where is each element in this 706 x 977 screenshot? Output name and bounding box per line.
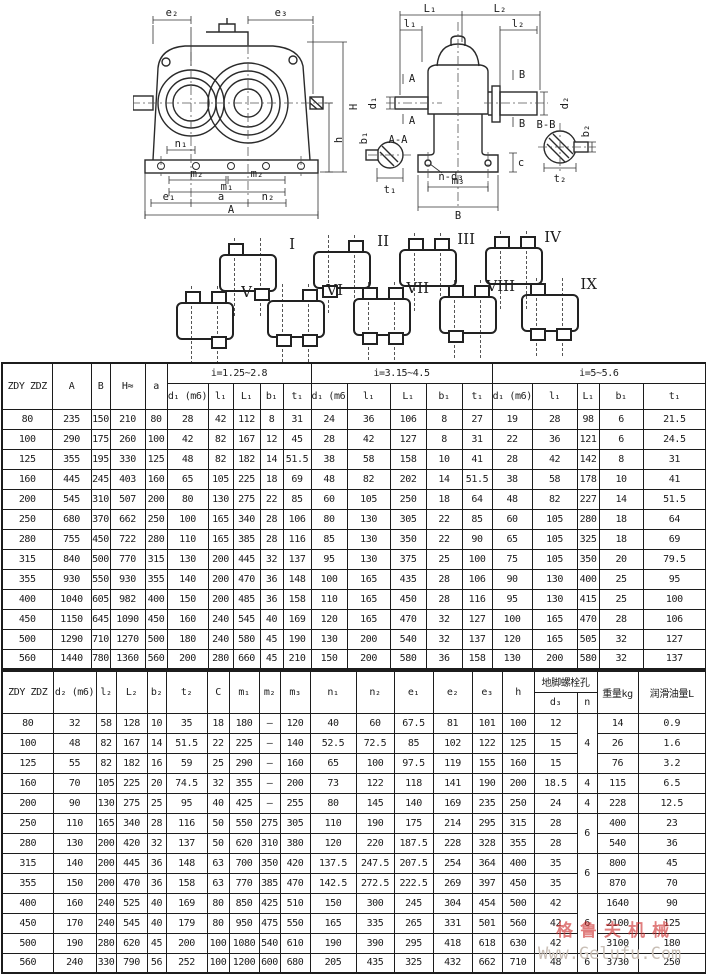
front-view-drawing: e₂ e₃ H h n₁ m₂ m₂ m₁ e₁ a n₂ A [133, 2, 361, 232]
table-cell: 470 [233, 569, 260, 589]
table-cell: 1360 [110, 649, 145, 669]
dim-label-L2: L₂ [494, 3, 507, 15]
column-header-a: a [145, 363, 167, 409]
table-cell: 182 [233, 449, 260, 469]
table-cell: 125 [502, 733, 534, 753]
table-cell: 310 [259, 833, 280, 853]
table-row: 5001290710127050018024058045190130200540… [2, 629, 706, 649]
table-cell: 110 [53, 813, 96, 833]
table-cell: 210 [110, 409, 145, 429]
table-cell: 64 [643, 509, 706, 529]
table-cell: 6.5 [638, 773, 706, 793]
table-cell: 81 [433, 713, 472, 733]
table-cell: 100 [207, 953, 229, 973]
table-cell: 28 [260, 529, 283, 549]
table-cell: 700 [229, 853, 259, 873]
table-cell: 165 [347, 589, 390, 609]
table-cell: 605 [91, 589, 110, 609]
section-title-AA: A-A [389, 134, 409, 146]
table-cell: 254 [433, 853, 472, 873]
table-cell: 331 [433, 913, 472, 933]
dim-label-e3: e₃ [275, 7, 288, 19]
shaft-stub-top [520, 236, 536, 249]
table-cell: 22 [426, 529, 462, 549]
table-cell: 32 [147, 833, 166, 853]
table-cell: 32 [599, 649, 643, 669]
table-cell: 330 [96, 953, 116, 973]
dim-label-l1: l₁ [404, 18, 417, 30]
table-cell: 95 [166, 793, 207, 813]
table-cell: 200 [532, 649, 577, 669]
dim-label-e2: e₂ [166, 7, 179, 19]
table-cell: 710 [91, 629, 110, 649]
table-cell: 31 [462, 429, 492, 449]
table-cell: 222.5 [394, 873, 433, 893]
table-cell: 12.5 [638, 793, 706, 813]
table-cell: 100 [492, 609, 532, 629]
dim-label-t1: t₁ [384, 184, 397, 196]
table-cell: 4 [577, 773, 597, 793]
table-cell: 80 [145, 409, 167, 429]
shaft-stub-bottom [448, 330, 464, 343]
column-header-m1: m₁ [229, 671, 259, 713]
column-header-l2: l₂ [96, 671, 116, 713]
table-cell: 200 [166, 933, 207, 953]
table-cell: 142 [577, 449, 599, 469]
table-cell: 1040 [52, 589, 91, 609]
table-cell: 42 [532, 449, 577, 469]
table-cell: 1440 [52, 649, 91, 669]
table-cell: 620 [116, 933, 147, 953]
table-cell: 65 [167, 469, 208, 489]
column-header-b1: b₁ [260, 383, 283, 409]
table-cell: 355 [2, 873, 53, 893]
table-cell: 335 [356, 913, 394, 933]
table-row: 160701052252074.532355—20073122118141190… [2, 773, 706, 793]
table-cell: 101 [472, 713, 502, 733]
table-cell: 72.5 [356, 733, 394, 753]
table-cell: 110 [167, 529, 208, 549]
table-cell: 14 [147, 733, 166, 753]
table-cell: 6 [577, 813, 597, 853]
shaft-stub-top [434, 238, 450, 251]
table-row: 5601440780136056020028066045210150200580… [2, 649, 706, 669]
table-row: 3559305509303551402004703614810016543528… [2, 569, 706, 589]
table-cell: 36 [532, 429, 577, 449]
table-cell: 200 [96, 853, 116, 873]
table-cell: 120 [492, 629, 532, 649]
table-cell: 180 [229, 713, 259, 733]
table-cell: 28 [147, 813, 166, 833]
table-cell: 8 [426, 429, 462, 449]
table-cell: 48 [53, 733, 96, 753]
table-cell: 160 [53, 893, 96, 913]
table-cell: 36 [638, 833, 706, 853]
table-cell: 76 [597, 753, 638, 773]
table-cell: 150 [91, 409, 110, 429]
dim-label-m2-left: m₂ [191, 168, 204, 180]
table-cell: 140 [167, 569, 208, 589]
table-cell: 167 [233, 429, 260, 449]
dim-label-h: h [333, 137, 345, 143]
ratio-group-1: i=1.25~2.8 [167, 363, 311, 383]
table-cell: 200 [2, 489, 52, 509]
table-cell: 420 [280, 853, 310, 873]
table-cell: 100 [167, 509, 208, 529]
table-cell: 25 [599, 589, 643, 609]
table-cell: 82 [96, 753, 116, 773]
table-cell: 435 [356, 953, 394, 973]
table-cell: 525 [116, 893, 147, 913]
table-cell: 74.5 [166, 773, 207, 793]
table-cell: 50 [207, 813, 229, 833]
table-cell: 485 [233, 589, 260, 609]
table-cell: 200 [167, 649, 208, 669]
table-cell: 50 [207, 833, 229, 853]
column-header-H: H≈ [110, 363, 145, 409]
table-cell: 18 [260, 469, 283, 489]
table-cell: 45 [147, 933, 166, 953]
ratio-group-3: i=5~5.6 [492, 363, 706, 383]
table-cell: 85 [311, 529, 347, 549]
table-cell: 540 [390, 629, 426, 649]
shaft-stub-top [494, 236, 510, 249]
table-cell: 397 [472, 873, 502, 893]
table-cell: 180 [167, 629, 208, 649]
section-mark-B-bottom: B [519, 118, 525, 130]
table-cell: 390 [356, 933, 394, 953]
table-row: 4501150645109045016024054540169120165470… [2, 609, 706, 629]
table-cell: 127 [462, 609, 492, 629]
table-cell: 70 [53, 773, 96, 793]
table-cell: 55 [53, 753, 96, 773]
column-header-e2: e₂ [433, 671, 472, 713]
assembly-form-label: V [241, 283, 252, 301]
table-cell: 450 [502, 873, 534, 893]
table-cell: 28 [260, 509, 283, 529]
table-row: 2807554507222801101653852811685130350229… [2, 529, 706, 549]
table-cell: 18.5 [534, 773, 577, 793]
assembly-form-label: IX [580, 275, 597, 293]
table-cell: 450 [390, 589, 426, 609]
table-cell: 150 [53, 873, 96, 893]
table-cell: 418 [433, 933, 472, 953]
table-cell: 1080 [229, 933, 259, 953]
reducer-datasheet-page: e₂ e₃ H h n₁ m₂ m₂ m₁ e₁ a n₂ A [0, 0, 706, 977]
table-row: 3551502004703615863770385470142.5272.522… [2, 873, 706, 893]
table-cell: 560 [502, 913, 534, 933]
table-cell: 200 [96, 873, 116, 893]
table-cell: 137 [643, 649, 706, 669]
dim-label-a: a [218, 191, 224, 203]
table-cell: 40 [207, 793, 229, 813]
table-cell: 12 [534, 713, 577, 733]
table-cell: 120 [311, 609, 347, 629]
table-cell: 500 [145, 629, 167, 649]
table-header-row: ZDY ZDZ A B H≈ a i=1.25~2.8 i=3.15~4.5 i… [2, 363, 706, 383]
table-cell: 137 [283, 549, 311, 569]
table-cell: 58 [532, 469, 577, 489]
table-cell: 445 [233, 549, 260, 569]
table-cell: 560 [2, 649, 52, 669]
table-cell: 95 [311, 549, 347, 569]
table-cell: 106 [390, 409, 426, 429]
table-cell: 400 [597, 813, 638, 833]
table-cell: 22 [426, 509, 462, 529]
dim-label-d1: d₁ [367, 97, 379, 110]
dim-label-l2: l₂ [512, 18, 525, 30]
table-cell: 18 [599, 509, 643, 529]
table-cell: 28 [534, 833, 577, 853]
assembly-form-label: VIII [486, 277, 515, 295]
table-cell: 165 [347, 569, 390, 589]
table-cell: 63 [207, 873, 229, 893]
table-cell: 550 [280, 913, 310, 933]
table-cell: 85 [462, 509, 492, 529]
table-cell: 252 [166, 953, 207, 973]
dim-label-A: A [228, 204, 235, 216]
table-cell: 630 [502, 933, 534, 953]
shaft-stub-top [362, 287, 378, 300]
table-cell: 200 [145, 489, 167, 509]
table-cell: 1290 [52, 629, 91, 649]
table-cell: 26 [597, 733, 638, 753]
table-cell: 214 [433, 813, 472, 833]
shaft-stub-top [448, 285, 464, 298]
table-cell: 600 [259, 953, 280, 973]
table-cell: 179 [166, 913, 207, 933]
table-row: 4001602405254016980850425510150300245304… [2, 893, 706, 913]
table-cell: 0.9 [638, 713, 706, 733]
table-cell: 40 [260, 609, 283, 629]
table-cell: 315 [2, 853, 53, 873]
table-cell: 680 [52, 509, 91, 529]
dim-label-t2: t₂ [554, 173, 567, 185]
table-cell: 200 [208, 569, 233, 589]
table-cell: 45 [283, 429, 311, 449]
table-cell: 315 [502, 813, 534, 833]
ratio-group-2: i=3.15~4.5 [311, 363, 492, 383]
table-cell: 82 [96, 733, 116, 753]
table-cell: 202 [390, 469, 426, 489]
section-mark-A-bottom: A [409, 115, 416, 127]
table-cell: 550 [229, 813, 259, 833]
table-cell: 300 [356, 893, 394, 913]
table-cell: 155 [472, 753, 502, 773]
table-cell: 400 [2, 589, 52, 609]
section-mark-A-top: A [409, 73, 416, 85]
table-cell: 500 [2, 933, 53, 953]
table-cell: 41 [462, 449, 492, 469]
table-cell: 20 [147, 773, 166, 793]
column-header-d3: d₃ [534, 692, 577, 713]
table-cell: 340 [233, 509, 260, 529]
table-cell: 245 [394, 893, 433, 913]
table-cell: 130 [492, 649, 532, 669]
table-cell: 130 [208, 489, 233, 509]
table-cell: 32 [426, 629, 462, 649]
table-cell: 275 [116, 793, 147, 813]
table-cell: 560 [145, 649, 167, 669]
table-cell: 370 [91, 509, 110, 529]
table-cell: 755 [52, 529, 91, 549]
table-cell: 450 [91, 529, 110, 549]
column-header-d1: d₁ (m6) [311, 383, 347, 409]
table-cell: 130 [167, 549, 208, 569]
table-cell: 160 [280, 753, 310, 773]
table-cell: 250 [145, 509, 167, 529]
column-header-t1: t₁ [643, 383, 706, 409]
table-cell: 620 [229, 833, 259, 853]
table-cell: 32 [207, 773, 229, 793]
shaft-stub-bottom [388, 332, 404, 345]
table-cell: 790 [116, 953, 147, 973]
table-cell: 90 [638, 893, 706, 913]
table-cell: 73 [310, 773, 356, 793]
shaft-stub-bottom [211, 336, 227, 349]
table-cell: 95 [492, 589, 532, 609]
table-cell: 110 [310, 813, 356, 833]
table-cell: 450 [145, 609, 167, 629]
shaft-stub-top [408, 238, 424, 251]
table-cell: 454 [472, 893, 502, 913]
column-header-t1: t₁ [283, 383, 311, 409]
table-cell: 1640 [597, 893, 638, 913]
table-cell: 80 [2, 713, 53, 733]
table-cell: 115 [597, 773, 638, 793]
column-header-model: ZDY ZDZ [2, 363, 52, 409]
table-cell: 280 [2, 833, 53, 853]
table-cell: 51.5 [462, 469, 492, 489]
table-cell: 160 [2, 469, 52, 489]
table-cell: 36 [147, 873, 166, 893]
table-cell: 52.5 [310, 733, 356, 753]
table-cell: 121 [577, 429, 599, 449]
table-cell: 178 [577, 469, 599, 489]
table-cell: 64 [462, 489, 492, 509]
table-cell: 165 [208, 509, 233, 529]
table-cell: 14 [260, 449, 283, 469]
table-cell: 550 [91, 569, 110, 589]
column-header-L1: L₁ [390, 383, 426, 409]
column-header-e1: e₁ [394, 671, 433, 713]
shaft-dimension-table: ZDY ZDZ A B H≈ a i=1.25~2.8 i=3.15~4.5 i… [1, 362, 706, 670]
table-cell: 142.5 [310, 873, 356, 893]
column-header-A: A [52, 363, 91, 409]
table-cell: 35 [534, 853, 577, 873]
table-cell: 48 [167, 449, 208, 469]
table-cell: 140 [394, 793, 433, 813]
table-row: 4001040605982400150200485361581101654502… [2, 589, 706, 609]
table-cell: 95 [643, 569, 706, 589]
table-cell: 22 [260, 489, 283, 509]
table-cell: 25 [426, 549, 462, 569]
table-cell: 4 [577, 713, 597, 773]
column-header-L1: L₁ [233, 383, 260, 409]
table-cell: 780 [91, 649, 110, 669]
table-cell: 8 [260, 409, 283, 429]
table-cell: 130 [532, 569, 577, 589]
table-cell: 158 [166, 873, 207, 893]
table-cell: 105 [347, 489, 390, 509]
table-cell: 120 [280, 713, 310, 733]
column-header-C: C [207, 671, 229, 713]
table-cell: 225 [233, 469, 260, 489]
table-cell: 190 [310, 933, 356, 953]
table-cell: 127 [390, 429, 426, 449]
shaft-stub-bottom [276, 334, 292, 347]
table-cell: 32 [260, 549, 283, 569]
table-cell: 6 [577, 853, 597, 893]
table-cell: 545 [116, 913, 147, 933]
table-cell: 200 [208, 549, 233, 569]
table-cell: 32 [599, 629, 643, 649]
table-cell: 140 [53, 853, 96, 873]
watermark-chinese: 格鲁夫机械 [556, 916, 676, 941]
shaft-stub-bottom [302, 334, 318, 347]
table-cell: 190 [283, 629, 311, 649]
table-cell: 770 [110, 549, 145, 569]
table-cell: 41 [643, 469, 706, 489]
table-cell: 25 [207, 753, 229, 773]
table-cell: 500 [2, 629, 52, 649]
table-cell: 250 [2, 509, 52, 529]
table-cell: 175 [91, 429, 110, 449]
table-cell: 355 [52, 449, 91, 469]
table-cell: 97.5 [394, 753, 433, 773]
table-cell: 65 [492, 529, 532, 549]
table-cell: 148 [166, 853, 207, 873]
table-cell: 245 [91, 469, 110, 489]
table-cell: 42 [167, 429, 208, 449]
table-cell: 355 [229, 773, 259, 793]
table-cell: 60 [311, 489, 347, 509]
table-cell: 240 [96, 913, 116, 933]
table-cell: 80 [310, 793, 356, 813]
table-cell: 200 [280, 773, 310, 793]
dim-label-A-small: n₂ [262, 191, 275, 203]
table-cell: 40 [310, 713, 356, 733]
table-cell: 315 [145, 549, 167, 569]
table-cell: 90 [462, 529, 492, 549]
table-cell: 119 [433, 753, 472, 773]
table-cell: 67.5 [394, 713, 433, 733]
table-cell: 58 [96, 713, 116, 733]
column-header-m2: m₂ [259, 671, 280, 713]
column-header-B: B [91, 363, 110, 409]
table-cell: 125 [145, 449, 167, 469]
column-header-h: h [502, 671, 534, 713]
table-cell: 10 [599, 469, 643, 489]
table-cell: 110 [311, 589, 347, 609]
table-cell: 145 [356, 793, 394, 813]
table-cell: 23 [638, 813, 706, 833]
table-cell: 540 [259, 933, 280, 953]
table-row: 3151402004453614863700350420137.5247.520… [2, 853, 706, 873]
table-cell: 165 [310, 913, 356, 933]
table-cell: 38 [311, 449, 347, 469]
table-cell: 470 [116, 873, 147, 893]
column-header-weight: 重量kg [597, 671, 638, 713]
table-cell: 240 [208, 629, 233, 649]
table-cell: 28 [426, 569, 462, 589]
table-cell: 450 [2, 609, 52, 629]
table-cell: 167 [116, 733, 147, 753]
table-row: 2005453105072008013027522856010525018644… [2, 489, 706, 509]
table-cell: 1.6 [638, 733, 706, 753]
assembly-form-label: IV [544, 228, 561, 246]
table-cell: — [259, 773, 280, 793]
